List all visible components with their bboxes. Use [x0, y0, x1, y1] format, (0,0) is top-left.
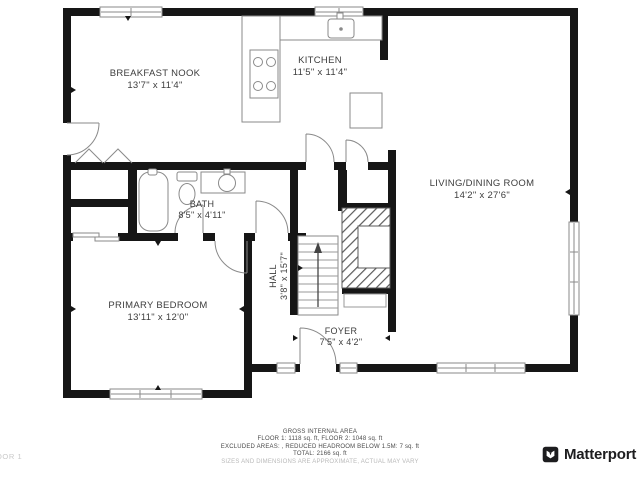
room-label-foyer: FOYER 7'5" x 4'2" — [320, 326, 363, 348]
closet-sliding-door — [73, 233, 119, 241]
stairs-up-icon — [298, 236, 338, 315]
area-summary-title: GROSS INTERNAL AREA — [0, 429, 640, 436]
room-dims: 3'8" x 15'7" — [279, 252, 290, 300]
stove-icon — [250, 50, 278, 98]
room-dims: 14'2" x 27'6" — [430, 190, 535, 202]
room-name: KITCHEN — [293, 55, 348, 67]
room-dims: 11'5" x 11'4" — [293, 67, 348, 79]
room-dims: 7'5" x 4'2" — [320, 337, 363, 348]
room-label-breakfast-nook: BREAKFAST NOOK 13'7" x 11'4" — [110, 68, 201, 92]
matterport-brand: Matterport — [542, 446, 636, 463]
bifold-closet-doors-icon — [75, 149, 132, 163]
room-name: BATH — [178, 199, 225, 210]
room-label-hall: HALL 3'8" x 15'7" — [268, 252, 290, 300]
room-dims: 13'11" x 12'0" — [108, 312, 207, 324]
room-dims: 13'7" x 11'4" — [110, 80, 201, 92]
window-breakfast-nook — [100, 7, 162, 17]
matterport-logo-icon — [542, 446, 559, 463]
hearth — [344, 294, 386, 307]
floor-tag: FLOOR 1 — [0, 452, 22, 461]
window-foyer-sidelite-right — [340, 363, 357, 373]
room-dims: 8'5" x 4'11" — [178, 210, 225, 221]
room-name: LIVING/DINING ROOM — [430, 178, 535, 190]
room-name: HALL — [268, 252, 279, 300]
room-label-bath: BATH 8'5" x 4'11" — [178, 199, 225, 221]
window-living-right — [569, 222, 579, 315]
room-label-living-dining: LIVING/DINING ROOM 14'2" x 27'6" — [430, 178, 535, 202]
door-hall-closet — [256, 201, 288, 233]
room-name: FOYER — [320, 326, 363, 337]
matterport-wordmark: Matterport — [564, 446, 636, 463]
fridge-icon — [350, 93, 382, 128]
area-summary-floors: FLOOR 1: 1118 sq. ft, FLOOR 2: 1048 sq. … — [0, 436, 640, 443]
vanity-sink-icon — [201, 169, 245, 193]
room-name: PRIMARY BEDROOM — [108, 300, 207, 312]
floor-plan-page: BREAKFAST NOOK 13'7" x 11'4" KITCHEN 11'… — [0, 0, 640, 480]
room-label-kitchen: KITCHEN 11'5" x 11'4" — [293, 55, 348, 79]
window-living-bottom — [437, 363, 525, 373]
room-label-primary-bedroom: PRIMARY BEDROOM 13'11" x 12'0" — [108, 300, 207, 324]
window-bedroom — [110, 389, 202, 399]
door-kitchen-hall-left — [306, 134, 334, 162]
door-kitchen-hall-right — [346, 140, 368, 162]
window-foyer-sidelite-left — [277, 363, 295, 373]
bathtub-icon — [139, 169, 168, 231]
door-bedroom — [215, 241, 247, 273]
room-name: BREAKFAST NOOK — [110, 68, 201, 80]
door-breakfast-nook — [67, 123, 99, 155]
